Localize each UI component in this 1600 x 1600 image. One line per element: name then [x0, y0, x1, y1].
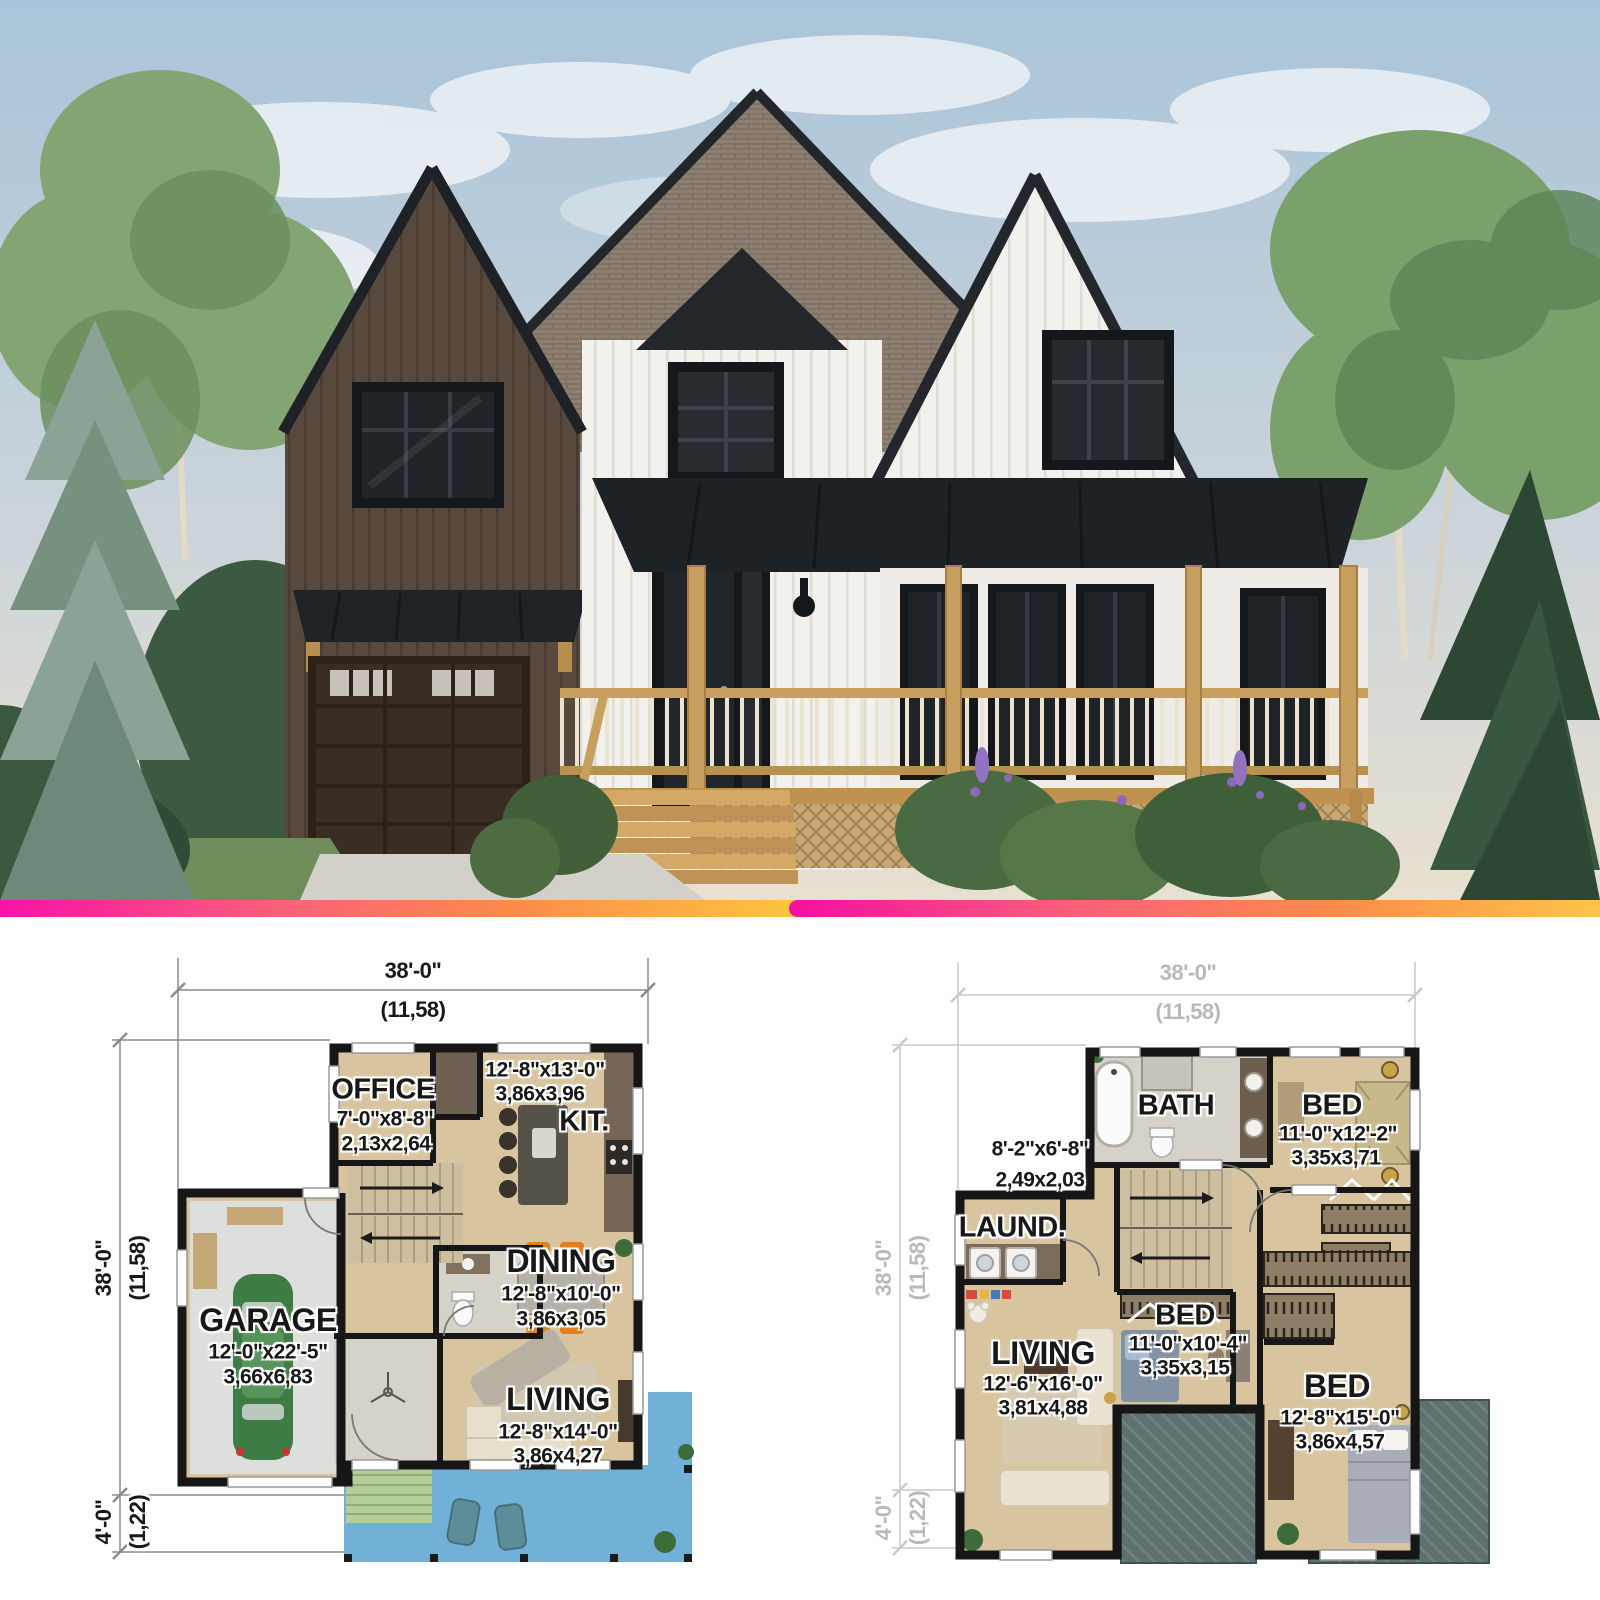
- plan1-garage-shelf: [193, 1233, 217, 1289]
- plan1-dining-m: 3,86x3,05: [517, 1309, 606, 1330]
- right-gable-window: [1042, 330, 1174, 470]
- plan2-hall-m: 2,49x2,03: [996, 1170, 1085, 1191]
- plan2-living-m: 3,81x4,88: [999, 1398, 1088, 1419]
- porch-balusters: [560, 698, 1368, 768]
- plan1-living-m: 3,86x4,27: [514, 1446, 603, 1467]
- plan1-mud-floor: [334, 1336, 440, 1463]
- plan2-laundry: [966, 1244, 1060, 1280]
- plan1-deck-steps: [346, 1465, 432, 1523]
- porch-roof: [592, 478, 1368, 572]
- plan2-bed3-ft: 12'-8"x15'-0": [1280, 1408, 1399, 1429]
- plan2-bed1-ft: 11'-0"x12'-2": [1279, 1124, 1397, 1145]
- plan1-living-ft: 12'-8"x14'-0": [498, 1422, 617, 1443]
- plan1-width-ft: 38'-0": [385, 960, 442, 982]
- plan1-depth-m: (11,58): [127, 1236, 149, 1301]
- plan2-width-ft: 38'-0": [1160, 962, 1217, 984]
- plan2-bed1-m: 3,35x3,71: [1292, 1148, 1381, 1169]
- dormer-window: [668, 362, 784, 482]
- plan1-garage-ft: 12'-0"x22'-5": [208, 1342, 327, 1363]
- plan2-deck-m: (1,22): [907, 1491, 929, 1545]
- plan2-stairs: [1117, 1170, 1232, 1288]
- house-photo: [0, 0, 1600, 900]
- plan-second-floor: [892, 962, 1489, 1563]
- plan2-bed3-label: BED: [1304, 1370, 1370, 1402]
- plan1-deck-ft: 4'-0": [93, 1500, 115, 1545]
- front-door: [652, 556, 770, 816]
- plan2-bed2-m: 3,35x3,15: [1141, 1358, 1230, 1379]
- plan1-kitchen-label: KIT.: [559, 1108, 609, 1137]
- plan2-depth-m: (11,58): [907, 1236, 929, 1301]
- plan1-living-label: LIVING: [506, 1383, 610, 1415]
- plan1-garage-shelf: [227, 1207, 283, 1225]
- plan1-deck-m: (1,22): [127, 1495, 149, 1549]
- plan1-office-m: 2,13x2,64: [342, 1134, 431, 1155]
- plan1-kitchen-m: 3,86x3,96: [496, 1084, 585, 1105]
- porch-toprail: [560, 688, 1368, 698]
- plan1-dining-ft: 12'-8"x10'-0": [501, 1284, 620, 1305]
- plan2-living-label: LIVING: [991, 1337, 1095, 1369]
- plan2-deck-ft: 4'-0": [873, 1496, 895, 1541]
- awning-bracket: [558, 642, 572, 672]
- plan2-bed2-ft: 11'-0"x10'-4": [1129, 1334, 1247, 1355]
- plan1-closet: [433, 1052, 480, 1117]
- house-photo-svg: [0, 0, 1600, 900]
- plan2-living-ft: 12'-6"x16'-0": [983, 1374, 1102, 1395]
- plan1-dining-label: DINING: [507, 1245, 616, 1277]
- left-gable-window: [352, 382, 504, 508]
- plan1-kitchen-ft: 12'-8"x13'-0": [485, 1060, 604, 1081]
- plan2-laundry-label: LAUND.: [959, 1214, 1066, 1243]
- plan1-width-m: (11,58): [381, 999, 446, 1021]
- plan2-width-m: (11,58): [1156, 1001, 1221, 1023]
- gradient-divider-left: [0, 900, 795, 917]
- plan1-garage-m: 3,66x6,83: [224, 1367, 313, 1388]
- plan1-garage-label: GARAGE: [199, 1304, 336, 1336]
- plan1-office-ft: 7'-0"x8'-8": [337, 1109, 434, 1130]
- plan2-bed2-label: BED: [1155, 1302, 1215, 1331]
- plan2-depth-ft: 38'-0": [873, 1240, 895, 1297]
- plan2-bed3-m: 3,86x4,57: [1296, 1432, 1385, 1453]
- plan1-depth-ft: 38'-0": [93, 1240, 115, 1297]
- plan1-office-label: OFFICE: [331, 1076, 434, 1105]
- plan2-hall-ft: 8'-2"x6'-8": [992, 1139, 1089, 1160]
- pin-image: 38'-0" (11,58) 38'-0" (11,58) 4'-0" (1,2…: [0, 0, 1600, 1600]
- floor-plans: [0, 917, 1600, 1600]
- gradient-divider-right: [789, 900, 1600, 917]
- plan2-bath-label: BATH: [1138, 1092, 1214, 1121]
- plan2-bed1-label: BED: [1302, 1092, 1362, 1121]
